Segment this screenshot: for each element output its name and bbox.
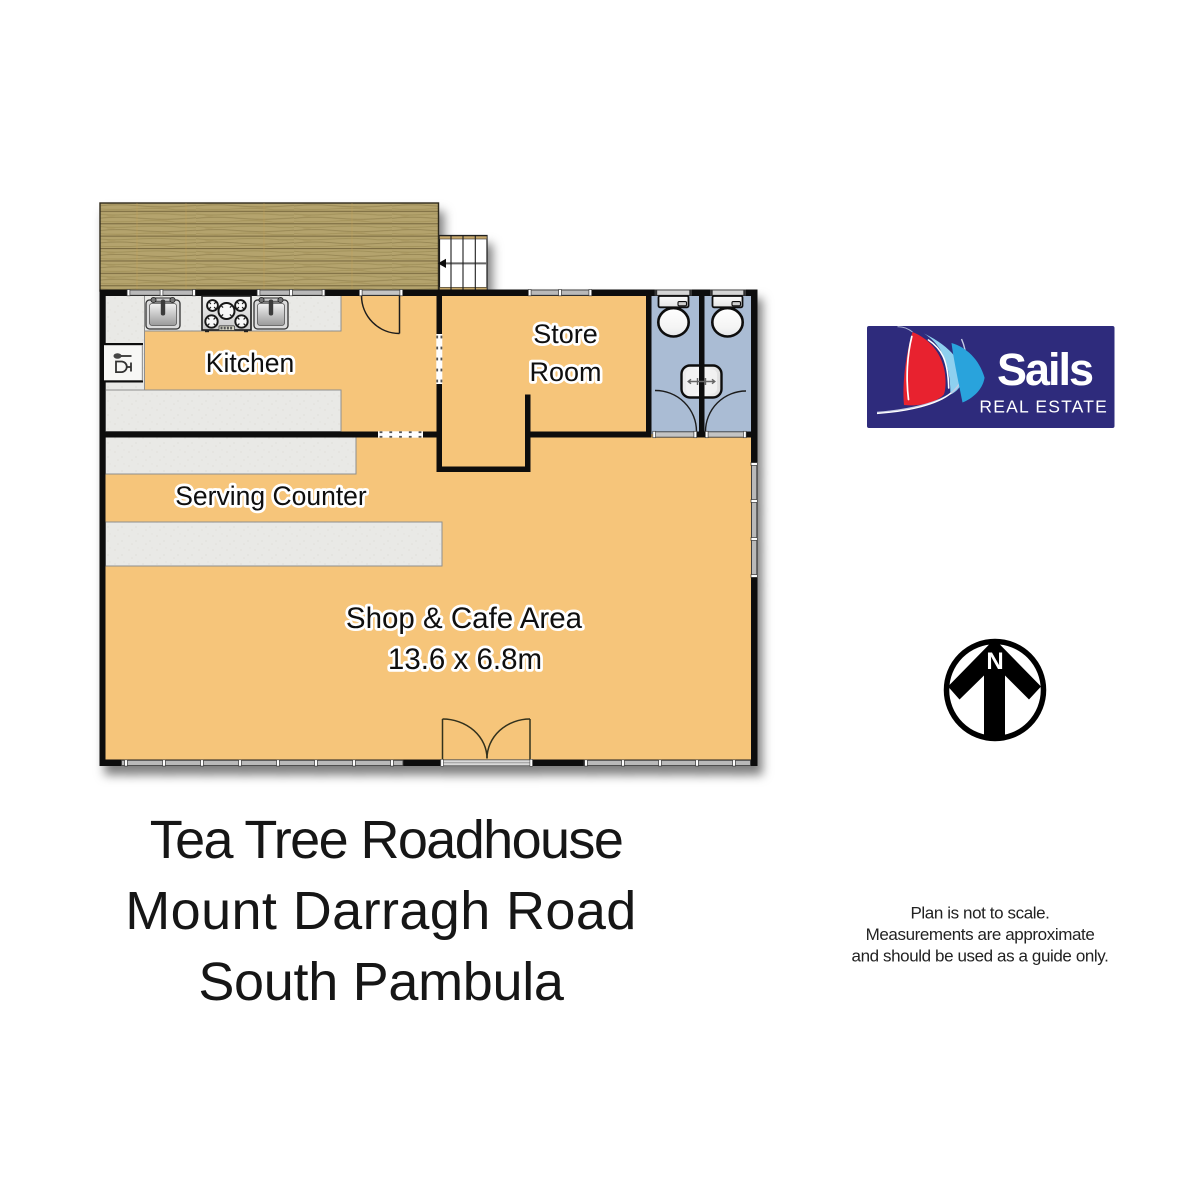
svg-text:N: N xyxy=(986,648,1003,675)
svg-text:Plan is not to scale.: Plan is not to scale. xyxy=(910,904,1049,923)
svg-text:Mount Darragh Road: Mount Darragh Road xyxy=(125,881,636,941)
svg-text:Kitchen: Kitchen xyxy=(206,348,294,378)
svg-text:Shop & Cafe Area: Shop & Cafe Area xyxy=(346,602,583,635)
svg-text:Store: Store xyxy=(533,319,598,349)
svg-text:and should be used as a guide: and should be used as a guide only. xyxy=(852,947,1109,966)
svg-text:Tea Tree Roadhouse: Tea Tree Roadhouse xyxy=(150,810,623,870)
svg-text:Sails: Sails xyxy=(997,344,1093,395)
svg-text:Room: Room xyxy=(529,357,601,387)
svg-text:Serving Counter: Serving Counter xyxy=(175,481,367,511)
svg-text:REAL ESTATE: REAL ESTATE xyxy=(979,397,1108,417)
svg-text:Measurements are approximate: Measurements are approximate xyxy=(866,925,1095,944)
svg-text:13.6 x 6.8m: 13.6 x 6.8m xyxy=(388,643,542,676)
svg-text:South Pambula: South Pambula xyxy=(198,952,565,1012)
